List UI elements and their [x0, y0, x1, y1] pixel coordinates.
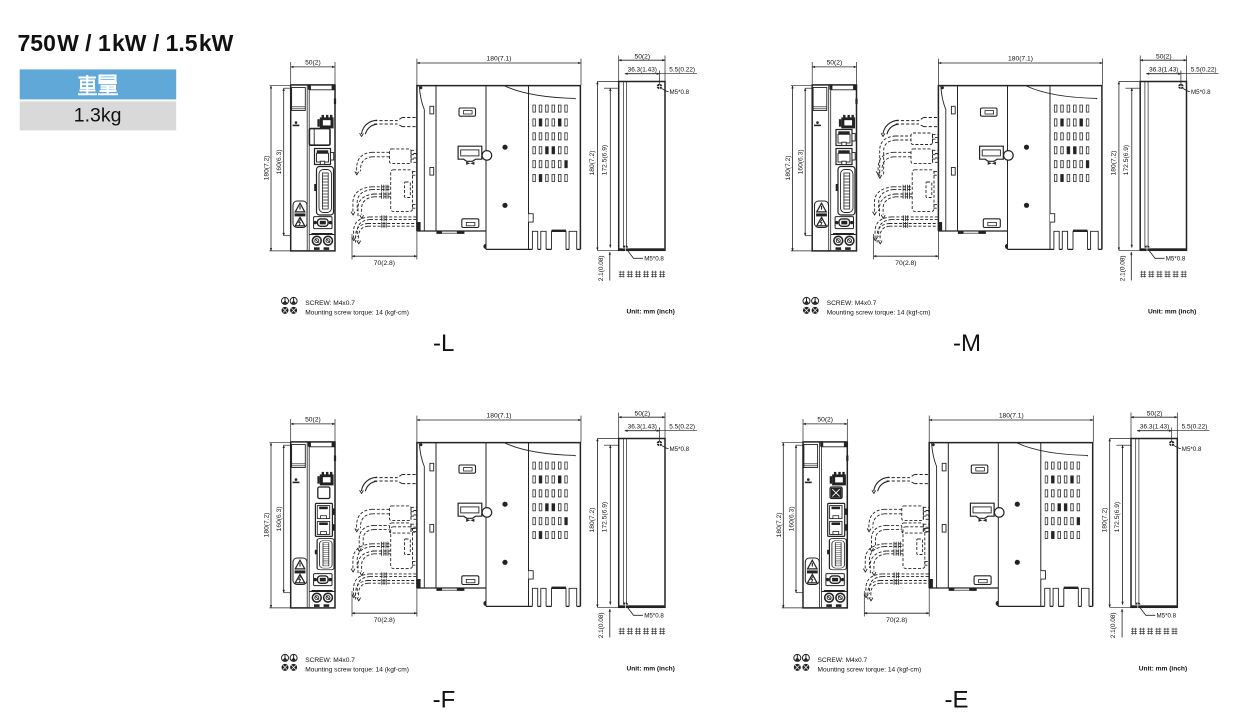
svg-text:-F: -F	[433, 687, 456, 714]
svg-text:-E: -E	[945, 687, 969, 714]
svg-text:-M: -M	[953, 330, 981, 357]
svg-text:-L: -L	[433, 330, 454, 357]
svg-text:1.3kg: 1.3kg	[74, 105, 122, 127]
svg-text:750W / 1kW / 1.5kW: 750W / 1kW / 1.5kW	[18, 30, 234, 56]
